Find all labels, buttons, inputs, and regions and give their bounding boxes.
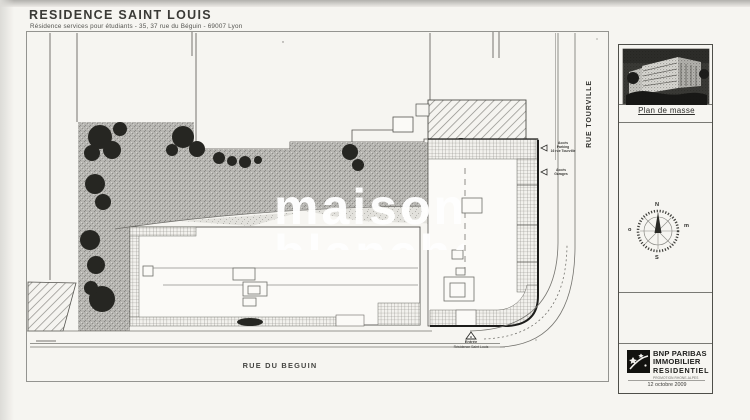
scanned-site-plan-page: RESIDENCE SAINT LOUIS Résidence services… (0, 0, 750, 420)
sidebar-plan-label: Plan de masse (620, 106, 713, 115)
watermark-line: maison (274, 184, 464, 230)
watermark: maison blanche (274, 184, 464, 250)
plan-date: 12 octobre 2009 (622, 382, 712, 388)
compass-west-label: o (628, 227, 631, 233)
page-title: RESIDENCE SAINT LOUIS (29, 8, 212, 22)
street-label-tourville: RUE TOURVILLE (586, 54, 598, 174)
bnp-subline: PROMOTION RHONE-ALPES (653, 376, 711, 380)
compass-icon (638, 211, 678, 251)
annotation-acces-garages: Accès Garages (546, 168, 576, 176)
compass-north-label: N (655, 202, 659, 208)
entrance-marker (466, 332, 476, 339)
bnp-line: RESIDENTIEL (653, 367, 711, 375)
page-subtitle: Résidence services pour étudiants - 35, … (30, 23, 242, 30)
annotation-entree: Entrée Résidence Saint Louis (436, 340, 506, 349)
annotation-acces-parking: Accès Parking 16 rue Tourville (546, 141, 580, 153)
annotation-line: Garages (546, 172, 576, 176)
annotation-line: Résidence Saint Louis (436, 345, 506, 349)
watermark-line: blanche (274, 230, 464, 250)
compass-east-label: m (684, 223, 689, 229)
compass-south-label: S (655, 255, 659, 261)
annotation-line: 16 rue Tourville (546, 149, 580, 153)
street-label-beguin: RUE DU BEGUIN (210, 361, 350, 370)
bnp-logo-text: BNP PARIBAS IMMOBILIER RESIDENTIEL PROMO… (653, 350, 711, 380)
bnp-logo-icon (627, 350, 650, 373)
building-photo (623, 49, 709, 105)
